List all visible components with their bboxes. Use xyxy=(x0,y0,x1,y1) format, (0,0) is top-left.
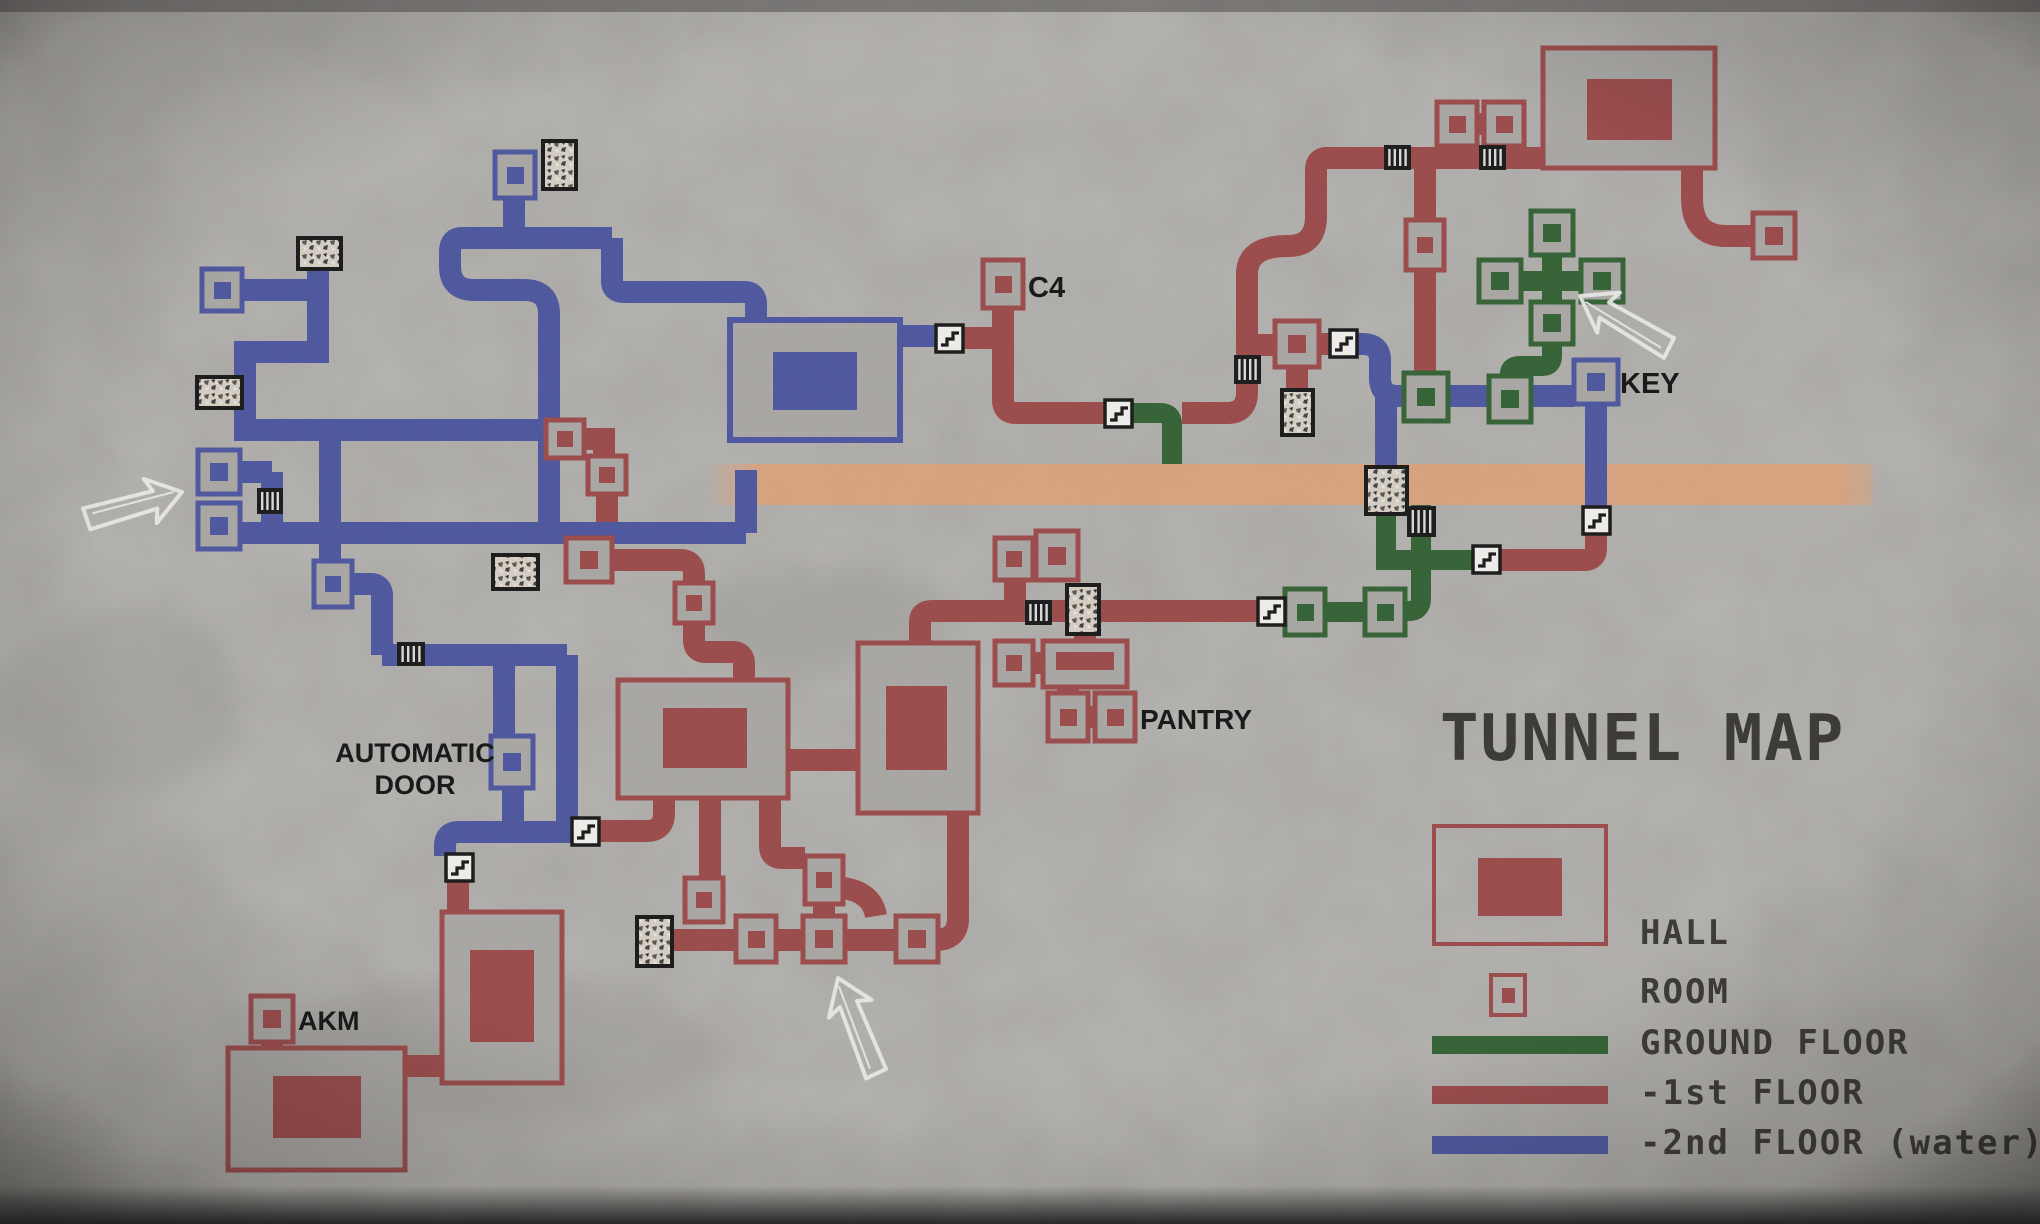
tunnel-map: C4 KEY PANTRY AUTOMATIC DOOR AKM TUNNEL … xyxy=(0,0,2040,1224)
texture-vignette xyxy=(0,0,2040,1224)
tunnel-map-page: C4 KEY PANTRY AUTOMATIC DOOR AKM TUNNEL … xyxy=(0,0,2040,1224)
